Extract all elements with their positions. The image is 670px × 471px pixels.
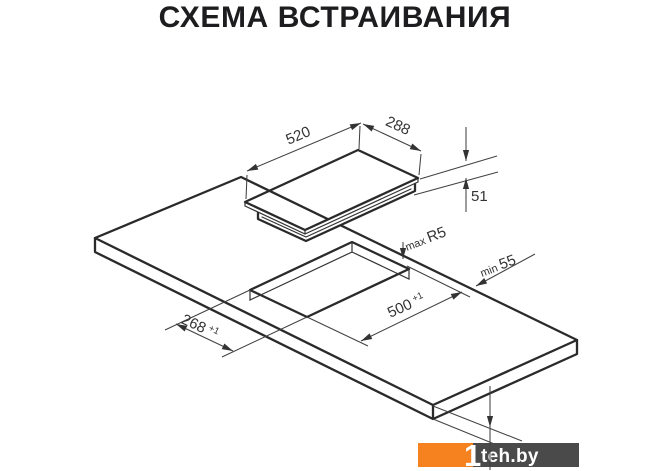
watermark: 1 teh.by [418, 438, 579, 471]
dim-edge-clearance-value: 55 [497, 251, 519, 273]
dim-corner-radius-value: R5 [425, 223, 449, 246]
svg-text:maxR5: maxR5 [402, 223, 448, 254]
installation-diagram: 520 288 51 maxR5 min55 [0, 0, 670, 471]
dim-edge-clearance: min55 [476, 251, 535, 286]
dim-cutout-width-tol: +1 [411, 290, 425, 304]
dim-edge-clearance-prefix: min [479, 262, 500, 280]
dim-cutout-width-value: 500 [385, 296, 415, 322]
countertop-outline [95, 177, 577, 419]
dim-cutout-depth-tol: +1 [207, 323, 221, 338]
installation-scheme-page: СХЕМА ВСТРАИВАНИЯ [0, 0, 670, 471]
dim-hob-height-label: 51 [471, 188, 488, 205]
svg-text:500+1: 500+1 [385, 290, 427, 321]
dim-hob-height: 51 [414, 127, 498, 212]
hob-body [245, 150, 418, 241]
svg-text:min55: min55 [477, 251, 518, 280]
dim-corner-radius: maxR5 [402, 223, 448, 259]
watermark-logo-icon: 1 [464, 438, 481, 471]
dim-corner-radius-prefix: max [404, 235, 428, 254]
dim-cutout-depth-value: 268 [179, 311, 209, 337]
svg-text:268+1: 268+1 [179, 311, 221, 343]
